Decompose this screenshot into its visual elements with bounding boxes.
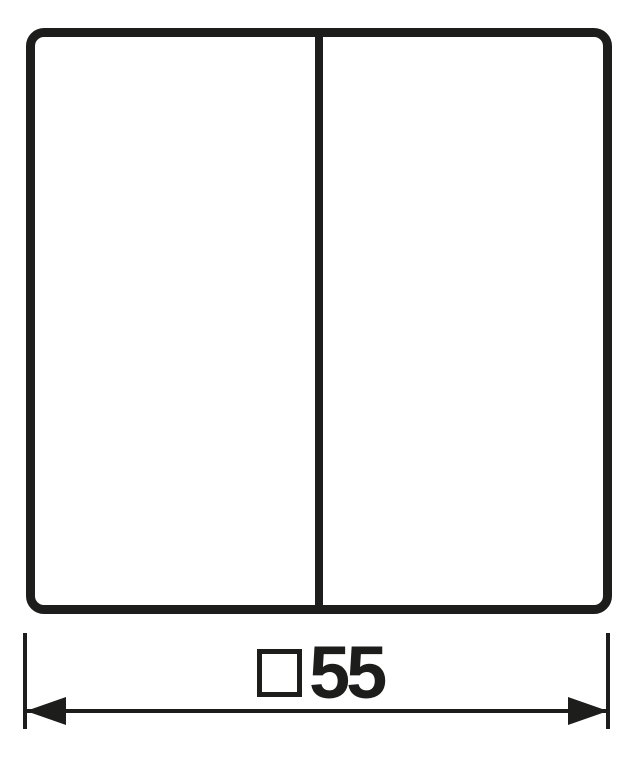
rocker-plate-outline	[26, 28, 612, 614]
dimension-value: 55	[309, 636, 383, 710]
dimension-drawing: 55	[0, 0, 638, 757]
arrow-left-icon	[26, 697, 66, 725]
square-symbol-icon	[257, 649, 302, 697]
arrow-right-icon	[568, 697, 608, 725]
rocker-divider-line	[315, 37, 323, 605]
